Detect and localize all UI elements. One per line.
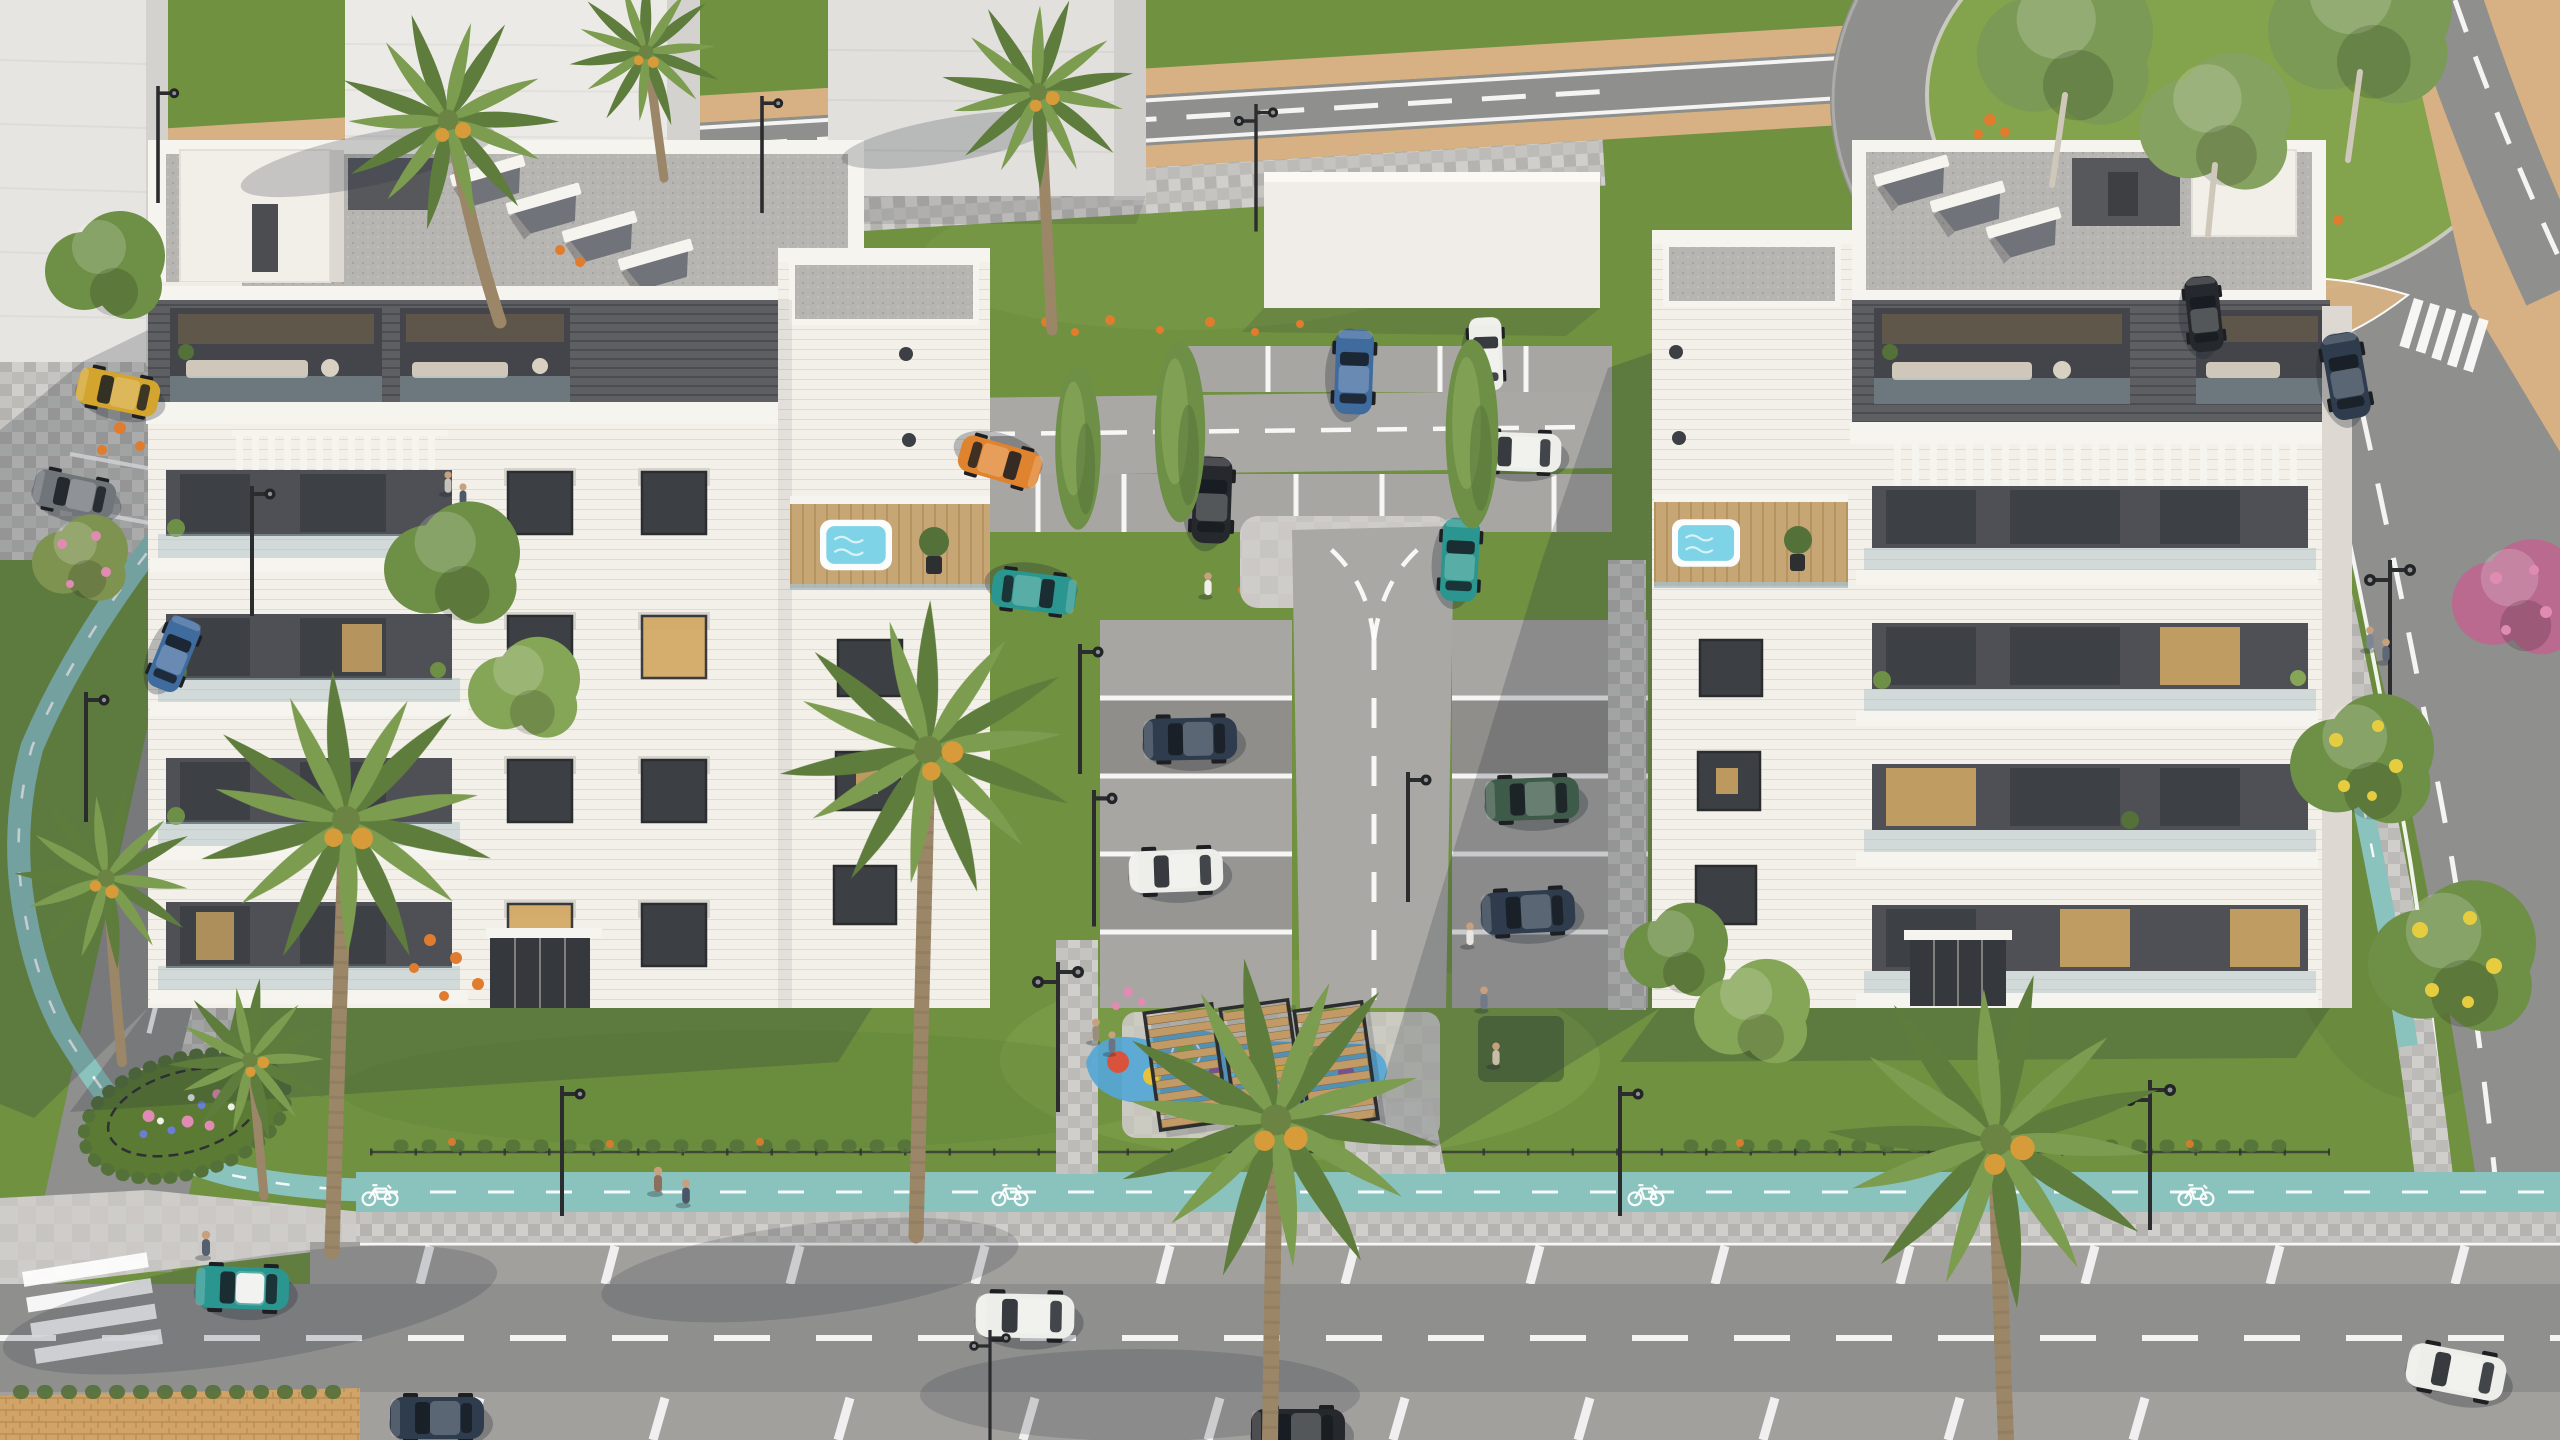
left-terrace-1 (170, 308, 382, 402)
left-jacuzzi-terrace (790, 496, 990, 590)
porthole-window (902, 433, 916, 447)
left-balcony-wing (148, 424, 472, 1008)
right-jacuzzi-terrace (1654, 494, 1848, 588)
jacuzzi (820, 520, 892, 570)
aerial-scene: Aerial rendering of a residential comple… (0, 0, 2560, 1440)
entrance-canopy (1904, 930, 2012, 940)
bottom-sidewalk (356, 1212, 2560, 1242)
balcony-row (1856, 486, 2318, 585)
courtyard-bays-top (1182, 346, 1612, 392)
window (834, 866, 896, 924)
window (1700, 640, 1762, 696)
terrace-plant (1784, 526, 1812, 554)
roof-access-door (252, 204, 278, 272)
poplar-tree (1055, 366, 1101, 529)
y-bays-left (1100, 620, 1292, 1008)
balcony-row (1856, 623, 2318, 726)
left-tower (778, 248, 990, 1008)
right-tower (1652, 230, 1852, 1008)
left-terrace-2 (400, 308, 570, 402)
poplar-tree (1446, 339, 1499, 528)
massing-wall-courtyard (1264, 172, 1600, 308)
car-navy-bottom-edge (389, 1393, 493, 1440)
building-right (1652, 140, 2352, 1008)
terrace-plant (919, 527, 949, 557)
roof-access-door (2108, 172, 2138, 216)
render-canvas: Aerial rendering of a residential comple… (0, 0, 2560, 1440)
right-facade (1852, 438, 2322, 1008)
entrance-canopy (486, 928, 602, 938)
porthole-window (1672, 431, 1686, 445)
porthole-window (1669, 345, 1683, 359)
porthole-window (899, 347, 913, 361)
jacuzzi (1672, 519, 1740, 567)
poplar-tree (1155, 342, 1205, 523)
balcony-row (1856, 764, 2318, 867)
right-terrace-1 (1874, 308, 2130, 404)
